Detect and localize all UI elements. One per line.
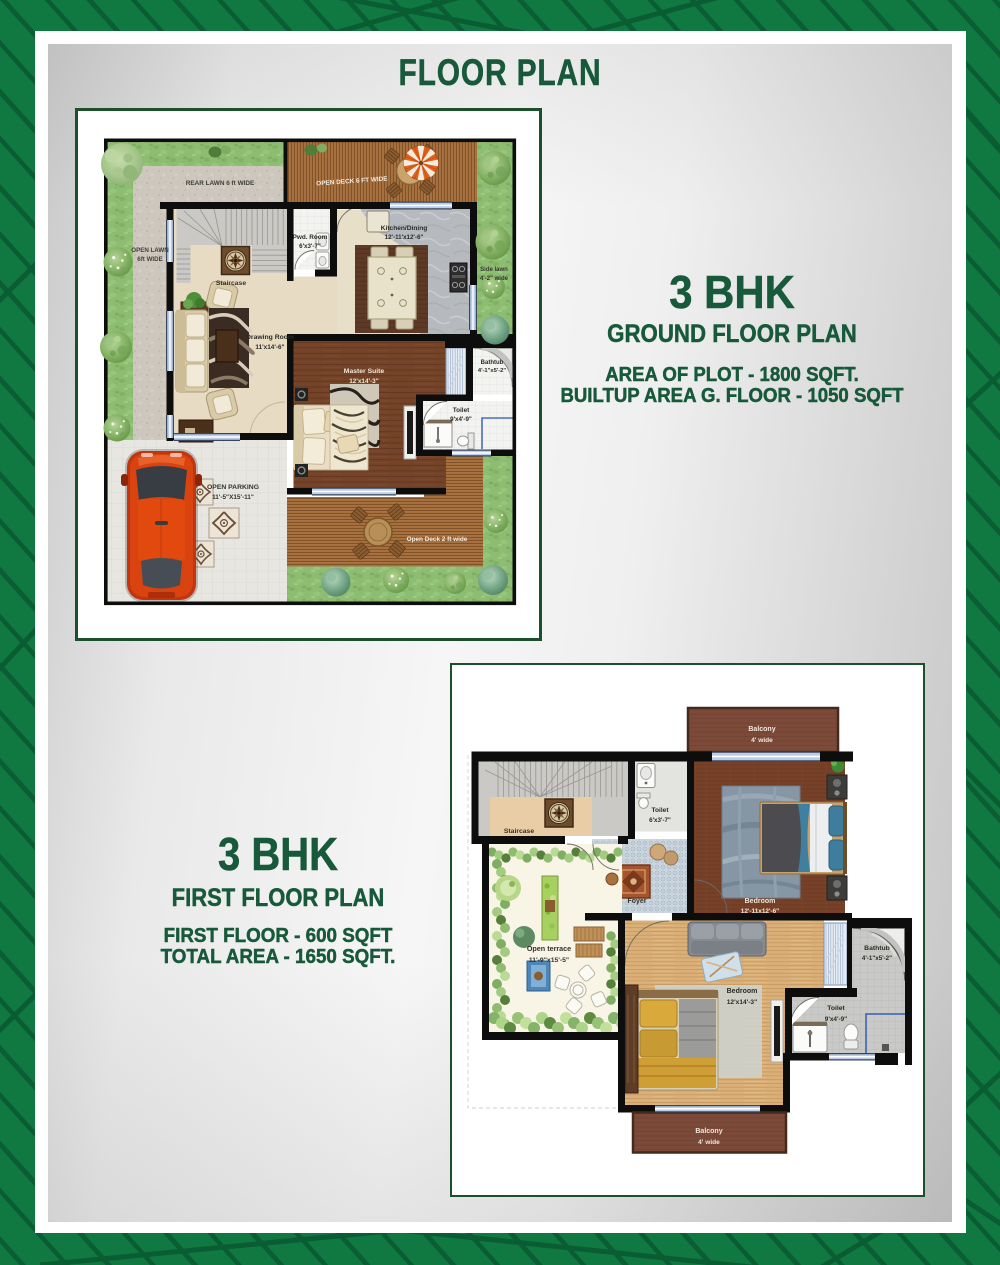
svg-text:REAR LAWN 6 ft WIDE: REAR LAWN 6 ft WIDE xyxy=(186,180,255,187)
svg-text:Toilet: Toilet xyxy=(453,407,470,414)
svg-text:4' wide: 4' wide xyxy=(751,737,773,744)
svg-text:Staircase: Staircase xyxy=(504,828,534,835)
svg-text:Bedroom: Bedroom xyxy=(745,898,776,905)
svg-text:Bathtub: Bathtub xyxy=(864,945,890,952)
svg-text:11'-5"X15'-11": 11'-5"X15'-11" xyxy=(212,494,254,501)
svg-text:Bedroom: Bedroom xyxy=(727,988,758,995)
svg-text:9'x4'-9": 9'x4'-9" xyxy=(825,1016,847,1023)
svg-text:9'x4'-9": 9'x4'-9" xyxy=(450,416,472,423)
svg-text:Open terrace: Open terrace xyxy=(527,944,571,953)
svg-text:4'-1"x5'-2": 4'-1"x5'-2" xyxy=(862,955,892,962)
svg-text:Master Suite: Master Suite xyxy=(344,368,385,375)
svg-text:Open Deck 2 ft wide: Open Deck 2 ft wide xyxy=(407,536,468,543)
svg-text:12'x14'-3": 12'x14'-3" xyxy=(349,378,379,385)
svg-text:12'-11'x12'-6": 12'-11'x12'-6" xyxy=(385,234,424,241)
svg-text:Bathtub: Bathtub xyxy=(481,360,504,366)
svg-text:Balcony: Balcony xyxy=(695,1128,722,1135)
svg-text:Side lawn: Side lawn xyxy=(480,267,508,273)
svg-text:4'-2" wide: 4'-2" wide xyxy=(480,276,509,282)
svg-text:OPEN LAWN: OPEN LAWN xyxy=(131,247,169,254)
svg-text:11'-9"x15'-5": 11'-9"x15'-5" xyxy=(529,957,569,964)
svg-text:6'x3'-7": 6'x3'-7" xyxy=(299,243,321,250)
svg-text:Toilet: Toilet xyxy=(651,807,669,814)
svg-text:Pwd. Room: Pwd. Room xyxy=(293,234,328,241)
svg-text:12'x14'-3": 12'x14'-3" xyxy=(727,999,757,1006)
svg-text:4'-1"x5'-2": 4'-1"x5'-2" xyxy=(478,368,506,374)
svg-text:6ft WIDE: 6ft WIDE xyxy=(137,256,162,263)
svg-text:Drawing Room: Drawing Room xyxy=(246,334,294,341)
svg-text:Kitchen/Dining: Kitchen/Dining xyxy=(381,225,428,232)
svg-text:OPEN PARKING: OPEN PARKING xyxy=(207,484,259,491)
svg-text:4' wide: 4' wide xyxy=(698,1139,720,1146)
svg-text:Toilet: Toilet xyxy=(827,1005,845,1012)
svg-text:Staircase: Staircase xyxy=(216,280,246,287)
svg-text:Foyer: Foyer xyxy=(627,898,646,905)
svg-text:11'x14'-6": 11'x14'-6" xyxy=(255,344,284,351)
svg-text:6'x3'-7": 6'x3'-7" xyxy=(649,817,671,824)
svg-text:Balcony: Balcony xyxy=(748,726,775,733)
